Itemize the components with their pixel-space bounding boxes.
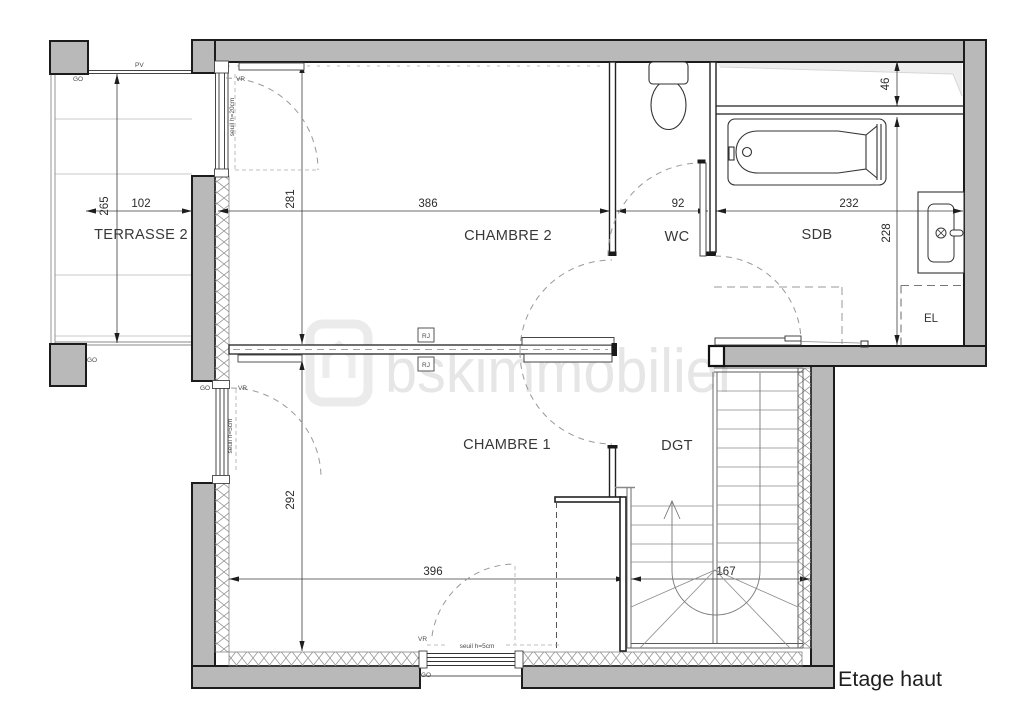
svg-text:GO: GO: [87, 357, 97, 364]
svg-text:PV: PV: [135, 62, 144, 69]
svg-text:GO: GO: [421, 672, 431, 679]
svg-text:EL: EL: [924, 313, 939, 325]
svg-text:46: 46: [880, 78, 892, 91]
svg-text:SDB: SDB: [802, 227, 833, 243]
svg-text:RJ: RJ: [422, 362, 430, 369]
svg-text:92: 92: [672, 198, 685, 210]
svg-text:CHAMBRE 2: CHAMBRE 2: [464, 228, 552, 244]
svg-text:GO: GO: [200, 385, 210, 392]
svg-text:292: 292: [285, 490, 297, 509]
svg-text:281: 281: [285, 189, 297, 208]
svg-text:265: 265: [99, 196, 111, 215]
svg-text:CHAMBRE 1: CHAMBRE 1: [463, 437, 551, 453]
svg-text:DGT: DGT: [661, 438, 693, 454]
svg-text:VR: VR: [236, 76, 245, 83]
svg-text:386: 386: [418, 198, 437, 210]
svg-text:seuil h=20cm: seuil h=20cm: [229, 98, 236, 136]
svg-text:seuil h=5cm: seuil h=5cm: [460, 643, 495, 650]
svg-text:102: 102: [131, 198, 150, 210]
svg-text:VR: VR: [238, 385, 247, 392]
svg-text:396: 396: [423, 566, 442, 578]
svg-text:228: 228: [881, 223, 893, 242]
svg-text:TERRASSE 2: TERRASSE 2: [94, 227, 188, 243]
svg-text:WC: WC: [665, 229, 690, 245]
svg-text:232: 232: [839, 198, 858, 210]
svg-text:seuil h=5cm: seuil h=5cm: [227, 419, 234, 454]
svg-text:RJ: RJ: [422, 333, 430, 340]
svg-text:GO: GO: [73, 76, 83, 83]
svg-text:VR: VR: [418, 636, 427, 643]
svg-text:Etage haut: Etage haut: [838, 667, 942, 691]
